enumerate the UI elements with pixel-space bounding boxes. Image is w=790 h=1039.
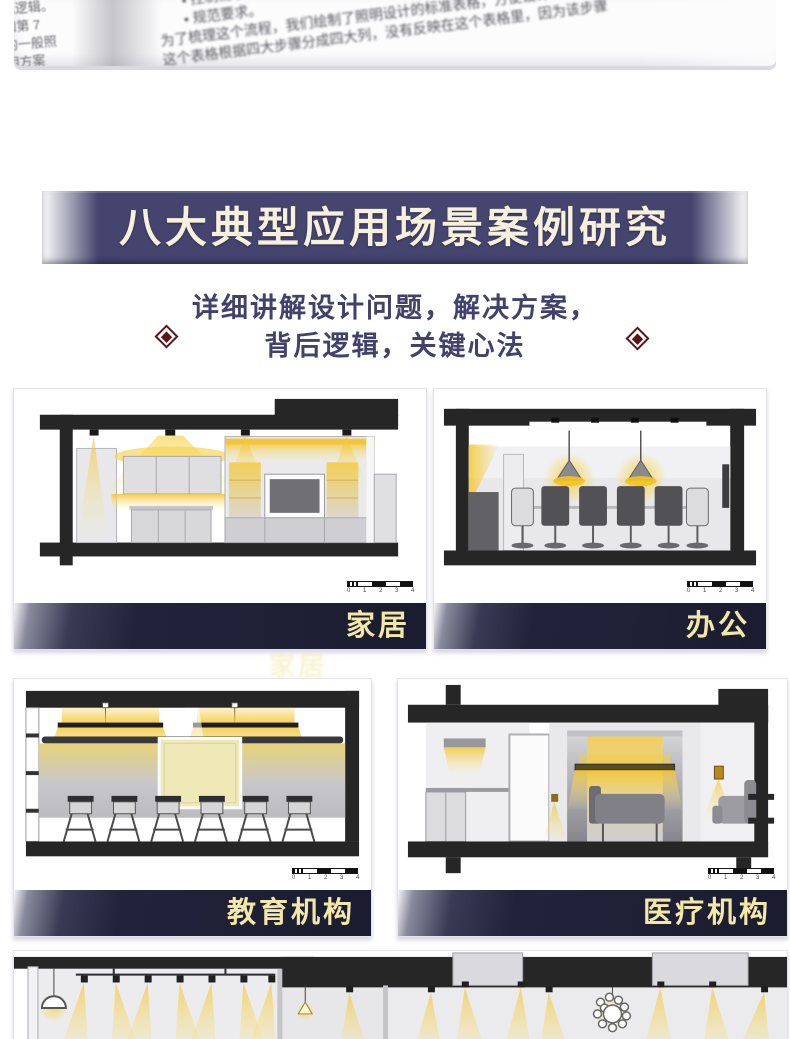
scale-bar-numbers: 0 1 2 3 4 5 <box>292 875 358 882</box>
subtitle-line-1: 详细讲解设计问题，解决方案， <box>0 289 790 327</box>
scale-bar-segments <box>292 868 358 874</box>
scale-bar: 0 1 2 3 4 5 <box>687 581 753 595</box>
scale-bar-segments <box>708 868 774 874</box>
card-label: 家居 <box>346 610 426 642</box>
scale-bar-segments <box>687 581 753 587</box>
card-label: 医疗机构 <box>643 897 787 929</box>
card-label: 教育机构 <box>227 897 371 929</box>
education-section-diagram: 0 1 2 3 4 5 <box>14 679 371 890</box>
scale-bar: 0 1 2 3 4 5 <box>347 581 413 595</box>
case-card-medical: 0 1 2 3 4 5 医疗机构 <box>397 678 788 937</box>
book-photo: 现逻辑。 如第 7 的一般照 明方案 • 控制需求。 • 规范要求。 为了梳理这… <box>14 0 776 66</box>
subtitle-line-2: 背后逻辑，关键心法 <box>0 327 790 365</box>
card-label-bar: 医疗机构 <box>398 890 787 936</box>
card-label-bar: 办公 <box>434 603 766 649</box>
case-card-office: 0 1 2 3 4 5 办公 <box>433 388 767 650</box>
section-banner: 八大典型应用场景案例研究 <box>42 191 748 264</box>
photo-edge-fade <box>636 0 776 66</box>
card-label-bar: 教育机构 <box>14 890 371 936</box>
scale-bar: 0 1 2 3 4 5 <box>708 868 774 882</box>
section-title: 八大典型应用场景案例研究 <box>42 191 748 264</box>
medical-diagram-svg <box>398 679 787 890</box>
card-label: 办公 <box>686 610 766 642</box>
product-detail-image: 现逻辑。 如第 7 的一般照 明方案 • 控制需求。 • 规范要求。 为了梳理这… <box>0 0 790 1039</box>
scale-bar-numbers: 0 1 2 3 4 5 <box>708 875 774 882</box>
retail-section-diagram <box>14 951 787 1039</box>
case-card-education: 0 1 2 3 4 5 教育机构 <box>13 678 372 937</box>
case-card-home: 0 1 2 3 4 5 家居 <box>13 388 427 650</box>
retail-diagram-svg <box>14 951 787 1039</box>
scale-bar-numbers: 0 1 2 3 4 5 <box>347 588 413 595</box>
office-section-diagram: 0 1 2 3 4 5 <box>434 389 766 603</box>
office-diagram-svg <box>434 389 766 603</box>
scale-bar: 0 1 2 3 4 5 <box>292 868 358 882</box>
section-subtitle: 详细讲解设计问题，解决方案， 背后逻辑，关键心法 <box>0 289 790 365</box>
card-label-bar: 家居 <box>14 603 426 649</box>
book-spine-shadow <box>72 0 162 66</box>
scale-bar-numbers: 0 1 2 3 4 5 <box>687 588 753 595</box>
home-section-diagram: 0 1 2 3 4 5 <box>14 389 426 603</box>
medical-section-diagram: 0 1 2 3 4 5 <box>398 679 787 890</box>
education-diagram-svg <box>14 679 371 890</box>
case-card-retail <box>13 950 788 1039</box>
scale-bar-segments <box>347 581 413 587</box>
home-diagram-svg <box>14 389 426 603</box>
